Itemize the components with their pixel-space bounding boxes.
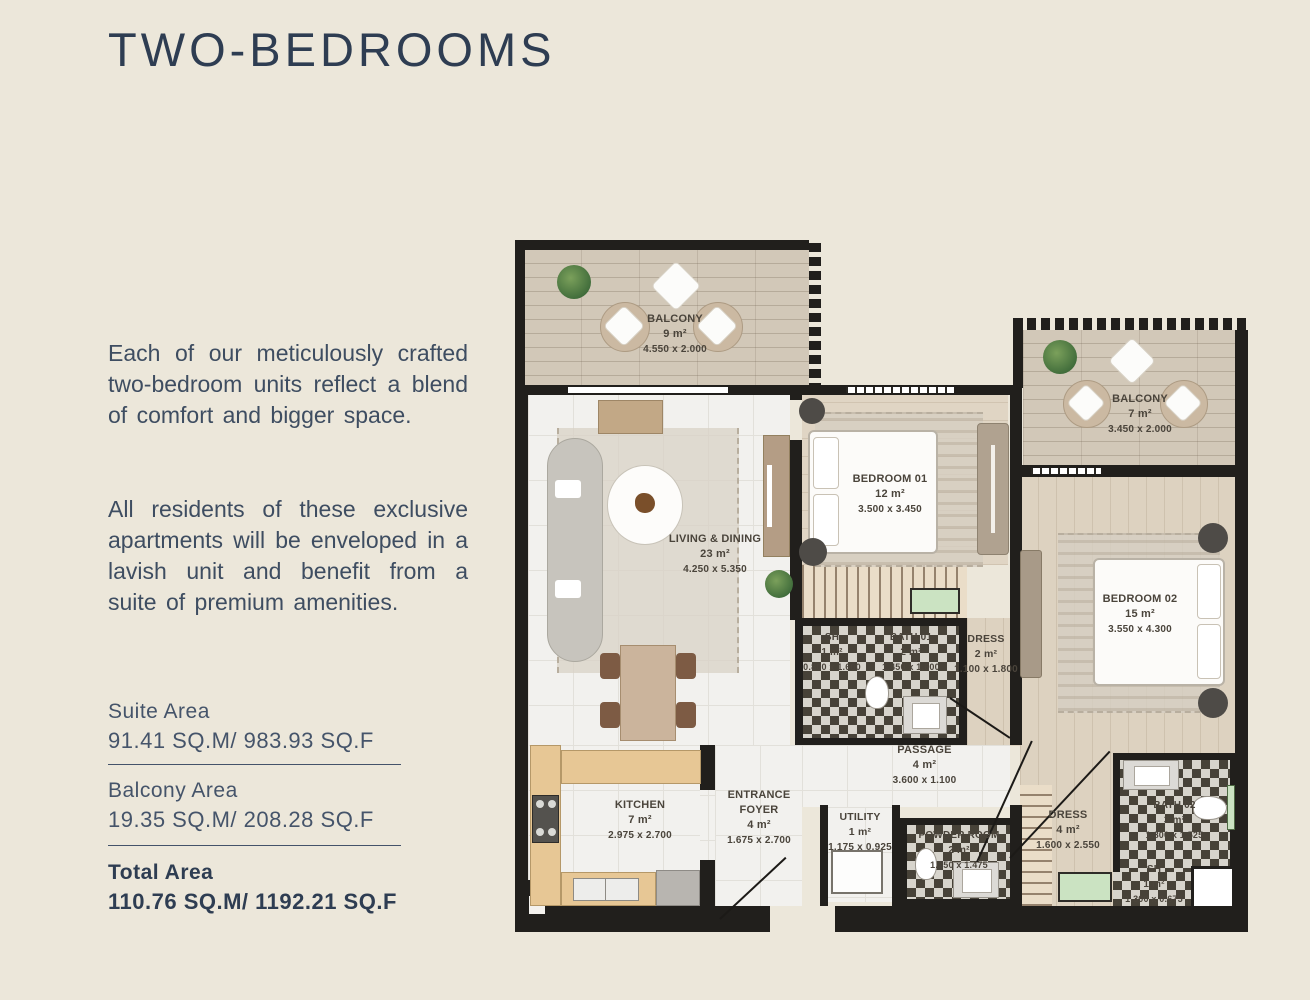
floor-plan: BALCONY 9 m² 4.550 x 2.000 LIVING & DINI… [515,240,1248,932]
amenities-paragraph: All residents of these exclusive apartme… [108,494,468,618]
foyer-label: ENTRANCE FOYER 4 m² 1.675 x 2.700 [711,788,807,848]
room-area: 7 m² [1070,407,1210,422]
powder-label: POWDER ROOM 2 m² 1.750 x 1.475 [903,828,1015,873]
room-dims: 3.600 x 1.100 [867,773,982,788]
room-dims: 0.800 x 1.600 [801,660,863,675]
room-dims: 3.550 x 4.300 [1070,622,1210,637]
dining-chair [600,653,620,679]
bedroom2-window [1030,467,1102,475]
wall [515,388,528,932]
brochure-page: { "page": { "title": "TWO-BEDROOMS" }, "… [0,0,1310,1000]
burner [536,828,544,836]
room-name: DRESS [943,632,1029,647]
room-name: KITCHEN [585,798,695,813]
room-dims: 1.800 x 1.525 [1117,828,1232,843]
dining-chair [676,653,696,679]
total-area-value: 110.76 SQ.M/ 1192.21 SQ.F [108,889,397,915]
dining-table [620,645,676,741]
bedroom1-label: BEDROOM 01 12 m² 3.500 x 3.450 [820,472,960,517]
room-dims: 3.500 x 3.450 [820,502,960,517]
room-dims: 4.550 x 2.000 [610,342,740,357]
room-name: SH [1111,862,1197,877]
kitchen-counter [561,750,701,784]
burner [536,800,544,808]
living-label: LIVING & DINING 23 m² 4.250 x 5.350 [645,532,785,577]
room-name: UTILITY [815,810,905,825]
sofa-cushion [555,580,581,598]
room-name: BALCONY [1070,392,1210,407]
balcony-area-label: Balcony Area [108,779,238,803]
room-area: 9 m² [610,327,740,342]
room-area: 7 m² [585,813,695,828]
burner [548,800,556,808]
wall [515,240,821,250]
wall [515,906,770,932]
sh2-label: SH 1 m² 1.300 x 0.675 [1111,862,1197,907]
room-area: 23 m² [645,547,785,562]
bath2-label: BATH 02 3 m² 1.800 x 1.525 [1117,798,1232,843]
room-dims: 1.600 x 2.550 [1013,838,1123,853]
room-name: BALCONY [610,312,740,327]
room-dims: 1.675 x 2.700 [711,833,807,848]
nightstand [1198,688,1228,718]
room-area: 2 m² [867,645,955,660]
room-area: 3 m² [1117,813,1232,828]
nightstand [1198,523,1228,553]
washer [831,850,883,894]
fridge [656,870,700,906]
room-dims: 2.975 x 2.700 [585,828,695,843]
wardrobe-bench [910,588,960,614]
total-area-label: Total Area [108,861,213,885]
burner [548,828,556,836]
wall [1013,318,1023,388]
balcony-slider-window [567,386,729,394]
bath2-vanity [1123,760,1179,790]
room-name: ENTRANCE FOYER [711,788,807,818]
wall [790,440,802,620]
room-name: PASSAGE [867,743,982,758]
passage-label: PASSAGE 4 m² 3.600 x 1.100 [867,743,982,788]
room-area: 1 m² [1111,877,1197,892]
divider [108,764,401,765]
bedroom1-window [845,386,955,394]
suite-area-value: 91.41 SQ.M/ 983.93 SQ.F [108,728,374,754]
wall [700,745,715,790]
kitchen-sink [573,878,639,901]
balcony2-railing [1013,318,1248,330]
basin [912,703,941,728]
room-area: 2 m² [943,647,1029,662]
room-area: 1 m² [801,645,863,660]
room-dims: 1.750 x 1.475 [903,858,1015,873]
room-area: 12 m² [820,487,960,502]
dining-chair [676,702,696,728]
wall [835,906,1248,932]
plant [1043,340,1077,374]
room-area: 4 m² [711,818,807,833]
room-area: 4 m² [1013,823,1123,838]
balcony1-railing [809,240,821,392]
balcony2-label: BALCONY 7 m² 3.450 x 2.000 [1070,392,1210,437]
room-name: POWDER ROOM [903,828,1015,843]
suite-area-label: Suite Area [108,700,210,724]
nightstand [799,398,825,424]
room-name: BATH 01 [867,630,955,645]
bedroom2-label: BEDROOM 02 15 m² 3.550 x 4.300 [1070,592,1210,637]
room-name: DRESS [1013,808,1123,823]
plant [557,265,591,299]
nightstand [799,538,827,566]
room-area: 1 m² [815,825,905,840]
room-dims: 1.450 x 1.600 [867,660,955,675]
bath1-vanity [903,696,947,734]
sink-divider [605,878,606,901]
sofa [547,438,603,662]
room-dims: 4.250 x 5.350 [645,562,785,577]
wall [790,388,802,400]
divider [108,845,401,846]
basin [1134,766,1171,786]
sideboard [598,400,663,434]
sh1-label: SH 1 m² 0.800 x 1.600 [801,630,863,675]
bath1-label: BATH 01 2 m² 1.450 x 1.600 [867,630,955,675]
toilet [865,676,889,709]
dining-chair [600,702,620,728]
room-dims: 3.450 x 2.000 [1070,422,1210,437]
tv [767,465,772,527]
room-dims: 1.100 x 1.800 [943,662,1029,677]
room-dims: 1.300 x 0.675 [1111,892,1197,907]
room-dims: 1.175 x 0.925 [815,840,905,855]
utility-label: UTILITY 1 m² 1.175 x 0.925 [815,810,905,855]
room-area: 2 m² [903,843,1015,858]
room-name: SH [801,630,863,645]
wall [700,860,715,906]
balcony-area-value: 19.35 SQ.M/ 208.28 SQ.F [108,807,374,833]
sofa-cushion [555,480,581,498]
room-area: 15 m² [1070,607,1210,622]
room-name: BEDROOM 01 [820,472,960,487]
wall [515,240,525,390]
kitchen-label: KITCHEN 7 m² 2.975 x 2.700 [585,798,695,843]
room-name: LIVING & DINING [645,532,785,547]
page-title: TWO-BEDROOMS [108,22,555,77]
wardrobe-handle [991,445,995,533]
dress1-label: DRESS 2 m² 1.100 x 1.800 [943,632,1029,677]
balcony1-label: BALCONY 9 m² 4.550 x 2.000 [610,312,740,357]
room-name: BATH 02 [1117,798,1232,813]
room-area: 4 m² [867,758,982,773]
intro-paragraph: Each of our meticulously crafted two-bed… [108,338,468,431]
dress2-label: DRESS 4 m² 1.600 x 2.550 [1013,808,1123,853]
room-name: BEDROOM 02 [1070,592,1210,607]
wall [1235,318,1248,932]
table-decor [635,493,655,513]
dress2-bench [1058,872,1112,902]
